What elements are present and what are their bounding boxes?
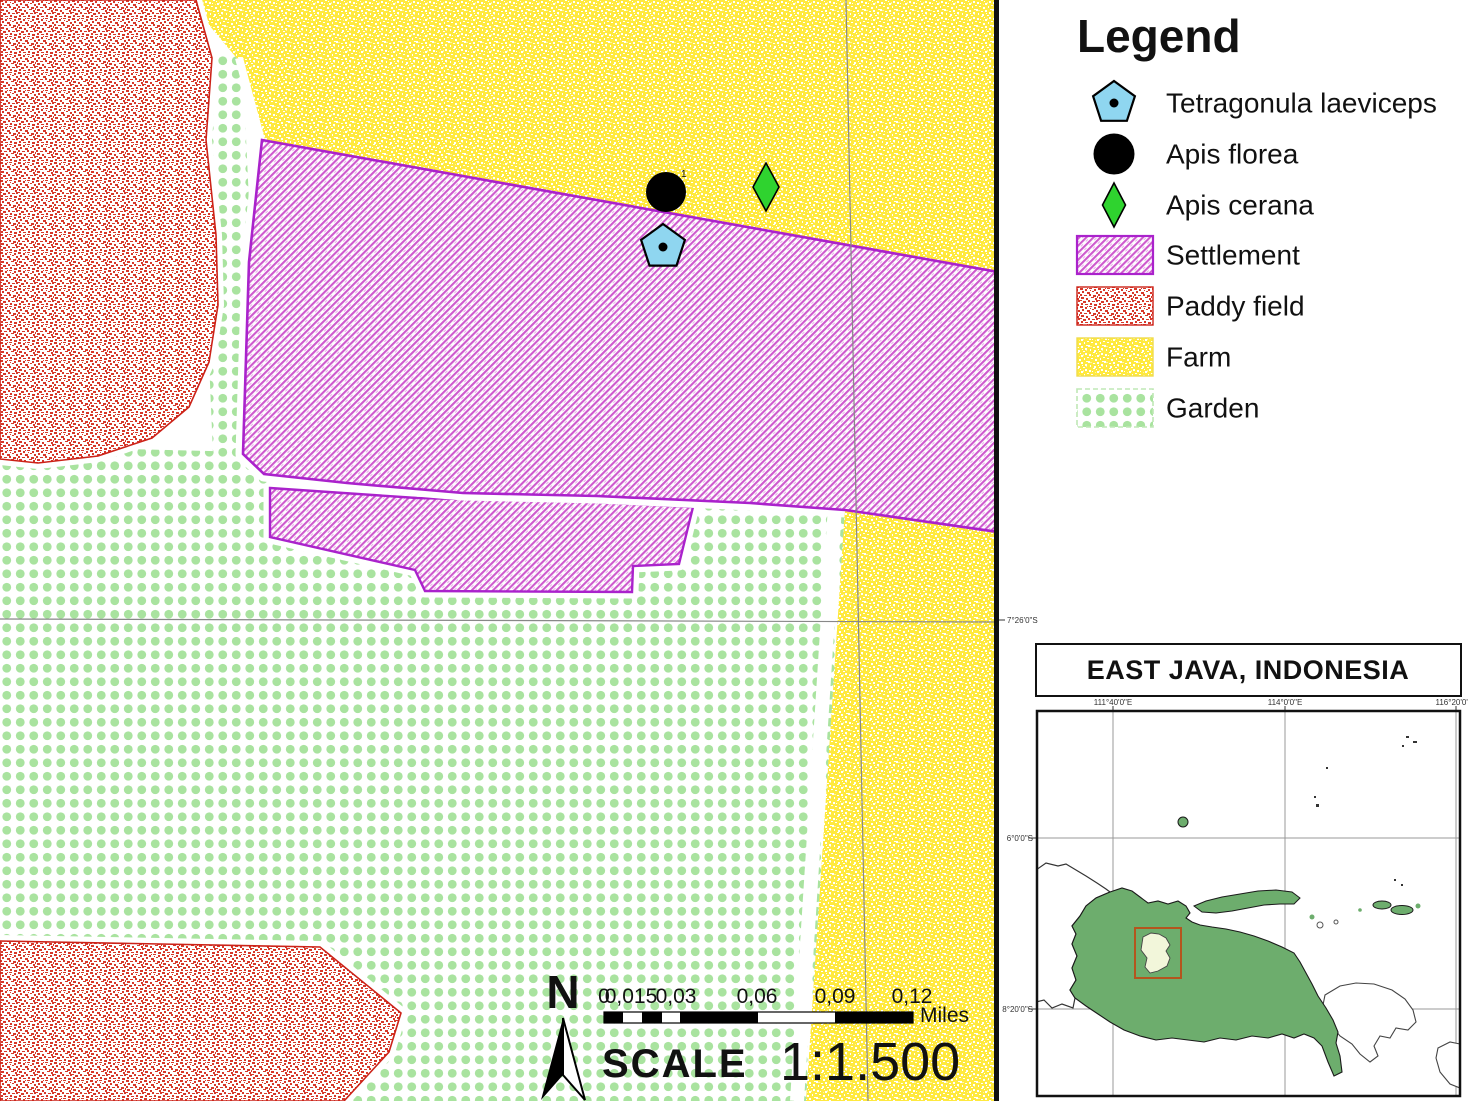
legend-label: Settlement: [1166, 240, 1300, 271]
legend-label: Farm: [1166, 342, 1231, 373]
pentagon-dot-icon: [1110, 99, 1119, 108]
scale-tick-1: 0,015: [605, 985, 658, 1008]
scale-unit-label: Miles: [920, 1004, 969, 1027]
legend-label: Garden: [1166, 393, 1259, 424]
site-number-label: 1: [681, 169, 687, 180]
legend-label: Paddy field: [1166, 291, 1305, 322]
inset-bawean-island: [1178, 817, 1188, 827]
paddy-region-top: [0, 0, 218, 463]
study-area-blob: [1141, 933, 1170, 973]
scale-bar-segment: [642, 1012, 662, 1023]
legend-item-paddy: Paddy field: [1077, 287, 1305, 325]
inset-map: EAST JAVA, INDONESIA 111°40'0"E 114°0'0"…: [1002, 644, 1468, 1096]
legend-item-apis-cerana: Apis cerana: [1103, 183, 1315, 227]
map-frame-border: [994, 0, 999, 1101]
apis-florea-circle-icon: [647, 173, 686, 212]
legend-item-settlement: Settlement: [1077, 236, 1300, 274]
legend-item-farm: Farm: [1077, 338, 1231, 376]
settlement-swatch: [1077, 236, 1153, 274]
legend-item-tetragonula: Tetragonula laeviceps: [1093, 81, 1437, 121]
lat-grid-label: 7°26'0"S: [1007, 616, 1038, 625]
legend-label: Apis florea: [1166, 139, 1299, 170]
garden-swatch: [1077, 389, 1153, 427]
inset-small-island: [1334, 920, 1338, 924]
tetragonula-pentagon-dot: [659, 243, 668, 252]
north-label: N: [546, 966, 579, 1018]
legend-label: Tetragonula laeviceps: [1166, 88, 1437, 119]
scale-bar-segment: [835, 1012, 913, 1023]
inset-lon-label-2: 116°20'0"E: [1435, 698, 1468, 707]
scale-tick-4: 0,09: [815, 985, 856, 1008]
scale-bar-segment: [680, 1012, 758, 1023]
inset-islet: [1310, 915, 1315, 920]
legend-title: Legend: [1077, 10, 1241, 62]
inset-lon-label-1: 114°0'0"E: [1268, 698, 1303, 707]
legend-panel: Legend Tetragonula laeviceps Apis florea…: [1077, 10, 1437, 427]
legend-label: Apis cerana: [1166, 190, 1314, 221]
inset-kangean-island: [1373, 901, 1391, 909]
circle-icon: [1094, 134, 1135, 175]
inset-lon-label-0: 111°40'0"E: [1094, 698, 1132, 707]
scale-tick-2: 0,03: [656, 985, 697, 1008]
inset-small-island: [1317, 922, 1323, 928]
legend-item-garden: Garden: [1077, 389, 1259, 427]
paddy-region-bottom: [0, 941, 401, 1101]
marker-apis-florea: [647, 173, 686, 212]
inset-map-content: [1036, 711, 1460, 1096]
inset-islet: [1416, 904, 1421, 909]
inset-islet: [1358, 908, 1362, 912]
scale-ratio: 1:1.500: [780, 1032, 960, 1092]
main-map: 1 0 0,015 0,03 0,06 0,09 0,12 Miles SCAL…: [0, 0, 998, 1101]
map-figure: 1 0 0,015 0,03 0,06 0,09 0,12 Miles SCAL…: [0, 0, 1468, 1101]
scale-word: SCALE: [602, 1042, 748, 1086]
inset-kangean-island: [1391, 906, 1413, 915]
legend-item-apis-florea: Apis florea: [1094, 134, 1299, 175]
scale-bar-segment: [604, 1012, 623, 1023]
diamond-icon: [1103, 183, 1126, 227]
farm-swatch: [1077, 338, 1153, 376]
paddy-swatch: [1077, 287, 1153, 325]
scale-tick-3: 0,06: [737, 985, 778, 1008]
inset-title: EAST JAVA, INDONESIA: [1087, 655, 1410, 685]
